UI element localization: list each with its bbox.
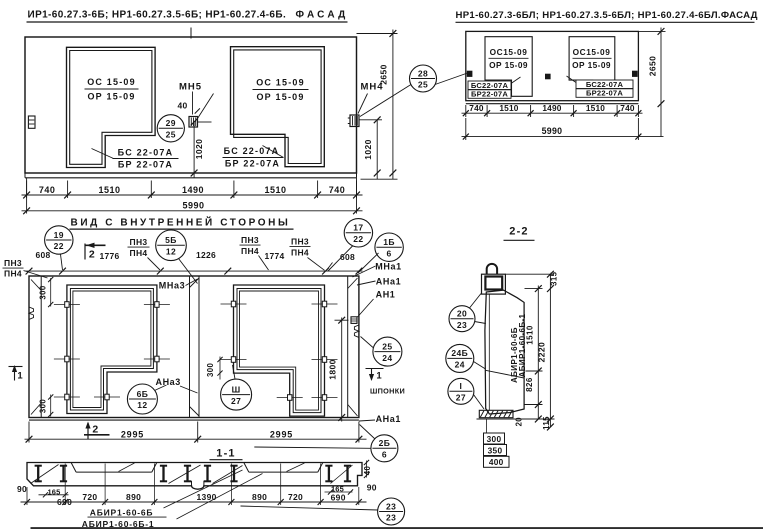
svg-text:МНа1: МНа1 (375, 262, 401, 272)
svg-text:2220: 2220 (536, 342, 546, 363)
svg-text:1800: 1800 (327, 359, 337, 380)
svg-text:5990: 5990 (542, 126, 563, 136)
svg-text:300: 300 (487, 434, 502, 444)
svg-text:1510: 1510 (264, 185, 286, 195)
svg-text:17: 17 (353, 223, 363, 233)
svg-text:ОС 15-09: ОС 15-09 (256, 78, 305, 88)
svg-text:40: 40 (177, 101, 187, 111)
svg-text:24: 24 (455, 360, 465, 370)
svg-text:ПН4: ПН4 (291, 248, 309, 258)
svg-text:740: 740 (329, 185, 346, 195)
svg-text:ПН4: ПН4 (241, 246, 259, 256)
svg-text:6Б: 6Б (137, 389, 149, 399)
svg-text:1Б: 1Б (383, 237, 395, 247)
svg-text:ШПОНКИ: ШПОНКИ (370, 387, 405, 396)
svg-text:ВИД С ВНУТРЕННЕЙ СТОРОНЫ: ВИД С ВНУТРЕННЕЙ СТОРОНЫ (71, 216, 291, 229)
svg-text:ИР1-60.27.3-6Б; НР1-60.27.3.5-: ИР1-60.27.3-6Б; НР1-60.27.3.5-6Б; НР1-60… (28, 10, 287, 21)
svg-text:ОР 15-09: ОР 15-09 (489, 60, 528, 70)
svg-text:1510: 1510 (499, 103, 518, 113)
svg-text:2: 2 (92, 423, 98, 435)
svg-text:ОС 15-09: ОС 15-09 (87, 77, 136, 87)
svg-text:1: 1 (376, 371, 382, 382)
svg-text:40: 40 (363, 466, 372, 476)
svg-text:АБИР1-60-6Б: АБИР1-60-6Б (90, 507, 154, 517)
svg-text:1020: 1020 (363, 139, 373, 160)
svg-text:90: 90 (17, 484, 27, 494)
svg-text:720: 720 (82, 492, 97, 502)
svg-text:24Б: 24Б (451, 348, 468, 358)
svg-text:115: 115 (542, 416, 551, 430)
svg-text:ПН4: ПН4 (4, 269, 22, 279)
svg-text:12: 12 (137, 400, 147, 410)
svg-text:6: 6 (387, 248, 392, 258)
svg-text:22: 22 (54, 241, 64, 251)
svg-text:5Б: 5Б (165, 235, 177, 245)
svg-text:ОР 15-09: ОР 15-09 (256, 92, 304, 102)
svg-text:МН5: МН5 (179, 82, 202, 93)
svg-text:ПН3: ПН3 (291, 237, 309, 247)
svg-text:БР22-07А: БР22-07А (586, 89, 623, 98)
svg-text:БР22-07А: БР22-07А (471, 90, 508, 99)
svg-text:1-1: 1-1 (216, 448, 236, 460)
svg-text:АНа1: АНа1 (376, 277, 401, 287)
svg-text:ПН3: ПН3 (4, 258, 22, 268)
svg-text:МНа3: МНа3 (159, 281, 185, 291)
svg-text:1: 1 (17, 371, 23, 382)
svg-text:690: 690 (331, 493, 346, 503)
svg-text:20: 20 (515, 417, 524, 427)
svg-text:2-2: 2-2 (509, 226, 529, 238)
svg-text:690: 690 (57, 497, 72, 507)
svg-text:ОС15-09: ОС15-09 (490, 47, 528, 57)
svg-text:ОР 15-09: ОР 15-09 (87, 92, 135, 102)
svg-text:608: 608 (35, 250, 50, 260)
svg-text:ФАСАД: ФАСАД (296, 10, 349, 21)
svg-text:2650: 2650 (379, 64, 389, 85)
svg-text:20: 20 (457, 309, 467, 319)
svg-text:23: 23 (386, 501, 396, 511)
svg-text:БС22-07А: БС22-07А (586, 80, 624, 89)
svg-text:I: I (460, 381, 463, 391)
svg-text:ПН4: ПН4 (130, 248, 148, 258)
svg-text:6: 6 (382, 450, 387, 460)
svg-text:826: 826 (525, 377, 534, 392)
svg-text:165: 165 (331, 485, 344, 494)
svg-text:25: 25 (382, 341, 392, 351)
svg-text:1020: 1020 (194, 139, 204, 160)
svg-text:25: 25 (418, 80, 428, 90)
svg-text:БС 22-07А: БС 22-07А (224, 146, 280, 156)
svg-text:400: 400 (489, 457, 504, 467)
svg-text:2995: 2995 (121, 430, 144, 440)
svg-text:23: 23 (457, 320, 467, 330)
svg-text:28: 28 (418, 68, 428, 78)
svg-text:300: 300 (39, 399, 48, 413)
svg-text:12: 12 (166, 247, 176, 257)
svg-text:300: 300 (206, 363, 215, 377)
svg-text:АНа3: АНа3 (155, 377, 180, 387)
svg-text:165: 165 (47, 488, 60, 497)
svg-text:1510: 1510 (525, 325, 534, 345)
svg-text:890: 890 (126, 492, 141, 502)
svg-text:1776: 1776 (99, 251, 119, 261)
svg-text:23: 23 (386, 513, 396, 523)
svg-text:ОС15-09: ОС15-09 (573, 47, 611, 57)
svg-text:740: 740 (469, 103, 484, 113)
svg-text:19: 19 (54, 230, 64, 240)
svg-text:АН1: АН1 (376, 290, 396, 300)
svg-text:5990: 5990 (182, 201, 204, 211)
svg-text:1510: 1510 (586, 103, 605, 113)
svg-text:НР1-60.27.3-6БЛ; НР1-60.27.3.5: НР1-60.27.3-6БЛ; НР1-60.27.3.5-6БЛ; НР1-… (456, 10, 758, 21)
svg-text:1510: 1510 (98, 185, 120, 195)
svg-text:315: 315 (550, 271, 559, 285)
svg-text:2995: 2995 (270, 430, 293, 440)
svg-text:ПН3: ПН3 (130, 237, 148, 247)
svg-text:740: 740 (620, 103, 635, 113)
svg-text:БР 22-07А: БР 22-07А (225, 159, 280, 169)
svg-text:1490: 1490 (182, 185, 204, 195)
svg-text:350: 350 (488, 445, 503, 455)
svg-text:БС22-07А: БС22-07А (471, 81, 509, 90)
svg-text:2Б: 2Б (379, 438, 391, 448)
svg-text:ПН3: ПН3 (241, 235, 259, 245)
svg-text:720: 720 (288, 492, 303, 502)
svg-text:1390: 1390 (197, 492, 217, 502)
svg-text:29: 29 (166, 118, 176, 128)
svg-text:АНа1: АНа1 (376, 414, 401, 424)
svg-text:Ш: Ш (232, 384, 241, 394)
svg-text:90: 90 (367, 483, 377, 493)
svg-text:ОР 15-09: ОР 15-09 (572, 60, 611, 70)
svg-text:27: 27 (231, 396, 241, 406)
svg-text:БС 22-07А: БС 22-07А (118, 148, 174, 158)
svg-text:22: 22 (353, 234, 363, 244)
svg-text:1226: 1226 (196, 250, 216, 260)
svg-text:27: 27 (456, 393, 466, 403)
svg-text:1490: 1490 (542, 103, 561, 113)
svg-text:890: 890 (252, 492, 267, 502)
svg-text:740: 740 (39, 185, 56, 195)
svg-text:2650: 2650 (648, 56, 658, 77)
svg-text:2: 2 (89, 249, 95, 261)
svg-text:24: 24 (382, 353, 392, 363)
svg-text:1774: 1774 (264, 251, 284, 261)
svg-text:300: 300 (39, 285, 48, 299)
svg-text:25: 25 (166, 130, 176, 140)
svg-text:БР 22-07А: БР 22-07А (118, 160, 173, 170)
